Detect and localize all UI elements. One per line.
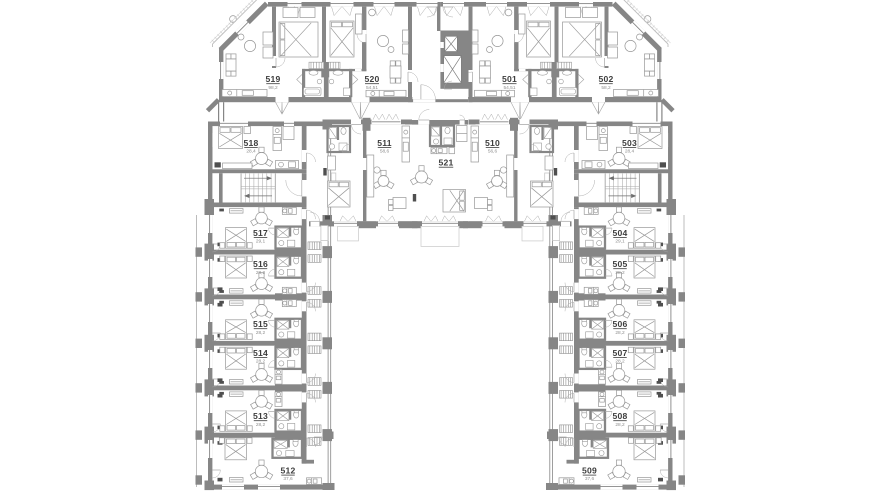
svg-text:37,6: 37,6: [283, 476, 293, 482]
svg-text:29,1: 29,1: [615, 239, 625, 245]
svg-text:521: 521: [439, 158, 454, 168]
svg-text:517: 517: [253, 228, 268, 238]
svg-text:58,2: 58,2: [601, 85, 611, 91]
svg-text:520: 520: [365, 74, 380, 84]
svg-text:28,2: 28,2: [615, 422, 625, 428]
svg-text:507: 507: [613, 348, 628, 358]
svg-text:28,2: 28,2: [256, 359, 266, 365]
svg-text:503: 503: [622, 138, 637, 148]
svg-text:502: 502: [599, 74, 614, 84]
svg-text:506: 506: [613, 319, 628, 329]
svg-text:504: 504: [613, 228, 628, 238]
svg-text:28,2: 28,2: [256, 270, 266, 276]
svg-text:28,2: 28,2: [615, 330, 625, 336]
svg-text:518: 518: [244, 138, 259, 148]
svg-text:28,4: 28,4: [625, 149, 635, 155]
svg-text:29,1: 29,1: [256, 239, 266, 245]
svg-text:28,4: 28,4: [246, 149, 256, 155]
svg-text:28,2: 28,2: [615, 270, 625, 276]
svg-text:516: 516: [253, 259, 268, 269]
svg-text:54,51: 54,51: [366, 85, 378, 91]
svg-text:28,2: 28,2: [256, 330, 266, 336]
svg-text:519: 519: [266, 74, 281, 84]
svg-text:512: 512: [281, 466, 296, 476]
svg-text:28,2: 28,2: [256, 422, 266, 428]
svg-text:37,6: 37,6: [585, 476, 595, 482]
svg-text:511: 511: [377, 138, 391, 148]
svg-text:98,2: 98,2: [268, 85, 278, 91]
svg-text:28,2: 28,2: [615, 359, 625, 365]
svg-text:514: 514: [253, 348, 268, 358]
svg-text:58,6: 58,6: [380, 149, 390, 155]
svg-text:509: 509: [582, 466, 597, 476]
svg-text:56,6: 56,6: [488, 149, 498, 155]
svg-text:54,51: 54,51: [503, 85, 515, 91]
svg-text:501: 501: [502, 74, 517, 84]
svg-text:508: 508: [613, 411, 628, 421]
svg-text:505: 505: [613, 259, 628, 269]
svg-text:515: 515: [253, 319, 268, 329]
svg-text:510: 510: [485, 138, 500, 148]
svg-text:513: 513: [253, 411, 268, 421]
